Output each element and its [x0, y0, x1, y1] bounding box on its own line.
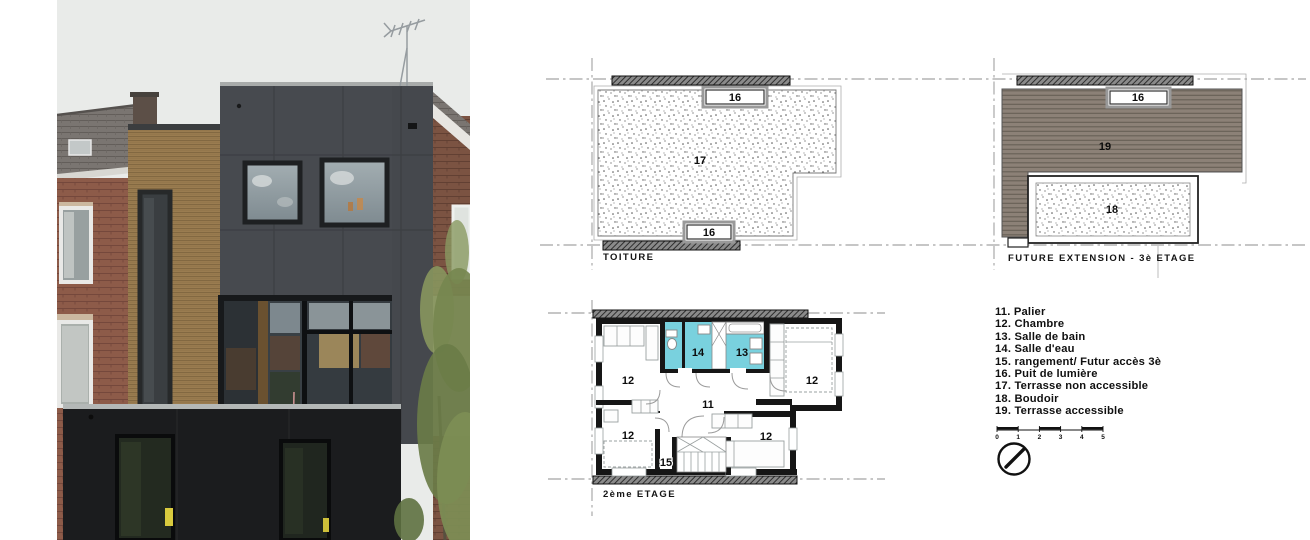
roof-plan: 16 16 17 TOITURE: [594, 76, 841, 263]
room-label: 12: [622, 430, 634, 442]
north-arrow: [999, 444, 1030, 475]
legend-item: 18. Boudoir: [995, 393, 1225, 405]
legend-item: 15. rangement/ Futur accès 3è: [995, 356, 1225, 368]
scale-tick: 1: [1016, 434, 1020, 441]
party-wall-top: [1017, 76, 1193, 85]
presentation-sheet: 16 16 17 TOITURE 16 18: [0, 0, 1310, 540]
roof-terrace-17: [598, 90, 836, 236]
skylight-top: 16: [703, 87, 767, 107]
scale-bar: 0 1 2 3 4 5: [995, 426, 1105, 441]
room-label: 19: [1099, 141, 1111, 153]
square-window-left: [245, 163, 300, 222]
scale-tick: 2: [1038, 434, 1042, 441]
toilet: [668, 339, 677, 350]
ground-floor-extension: [63, 404, 401, 540]
yellow-sticker: [323, 518, 329, 532]
plan-title: FUTURE EXTENSION - 3è ETAGE: [1008, 253, 1196, 264]
legend-item: 17. Terrasse non accessible: [995, 380, 1225, 392]
skylight: 16: [1107, 88, 1170, 107]
skylight-bottom: 16: [684, 222, 734, 242]
scale-tick: 5: [1101, 434, 1105, 441]
room-label: 15: [660, 457, 672, 469]
legend-item: 11. Palier: [995, 306, 1225, 318]
legend-item: 13. Salle de bain: [995, 331, 1225, 343]
room-label: 11: [702, 399, 714, 411]
sink: [750, 338, 762, 349]
room-label: 12: [760, 431, 772, 443]
room-label: 12: [622, 375, 634, 387]
room-label: 14: [692, 347, 705, 359]
party-wall-bottom: [593, 476, 797, 484]
square-window-right: [322, 160, 387, 225]
plan-title: 2ème ETAGE: [603, 489, 676, 500]
yellow-sticker: [165, 508, 173, 526]
roof-skylight: [69, 140, 91, 155]
scale-tick: 4: [1080, 434, 1084, 441]
room-label: 13: [736, 347, 748, 359]
scale-tick: 3: [1059, 434, 1063, 441]
party-wall-top: [593, 310, 808, 318]
legend-item: 16. Puit de lumière: [995, 368, 1225, 380]
plan-drawings: 16 16 17 TOITURE 16 18: [540, 0, 1310, 540]
boudoir-room: 18: [1028, 176, 1198, 243]
party-wall-top: [612, 76, 790, 85]
wall-lamp: [408, 123, 417, 129]
stairs: [677, 437, 726, 472]
room-label: 17: [694, 155, 706, 167]
legend-item: 14. Salle d'eau: [995, 343, 1225, 355]
scale-tick: 0: [995, 434, 999, 441]
legend-item: 12. Chambre: [995, 318, 1225, 330]
room-label: 18: [1106, 204, 1118, 216]
sink: [750, 353, 762, 364]
room-label: 16: [729, 92, 741, 104]
wet-rooms: [665, 322, 764, 369]
sink: [698, 325, 710, 334]
wood-clad-volume: [128, 124, 220, 410]
second-floor-plan: 12 12 12 12 11 13 14 15 2ème ETAGE: [593, 310, 843, 500]
legend-item: 19. Terrasse accessible: [995, 405, 1225, 417]
legend: 11. Palier 12. Chambre 13. Salle de bain…: [995, 306, 1225, 418]
facade-spotlight: [237, 104, 241, 108]
facade-photo: [57, 0, 470, 540]
extension-plan: 16 18 19 FUTURE EXTENSION - 3è ETAGE: [1002, 74, 1246, 264]
room-label: 12: [806, 375, 818, 387]
room-label: 16: [1132, 92, 1144, 104]
room-label: 16: [703, 227, 715, 239]
plan-title: TOITURE: [603, 252, 654, 263]
